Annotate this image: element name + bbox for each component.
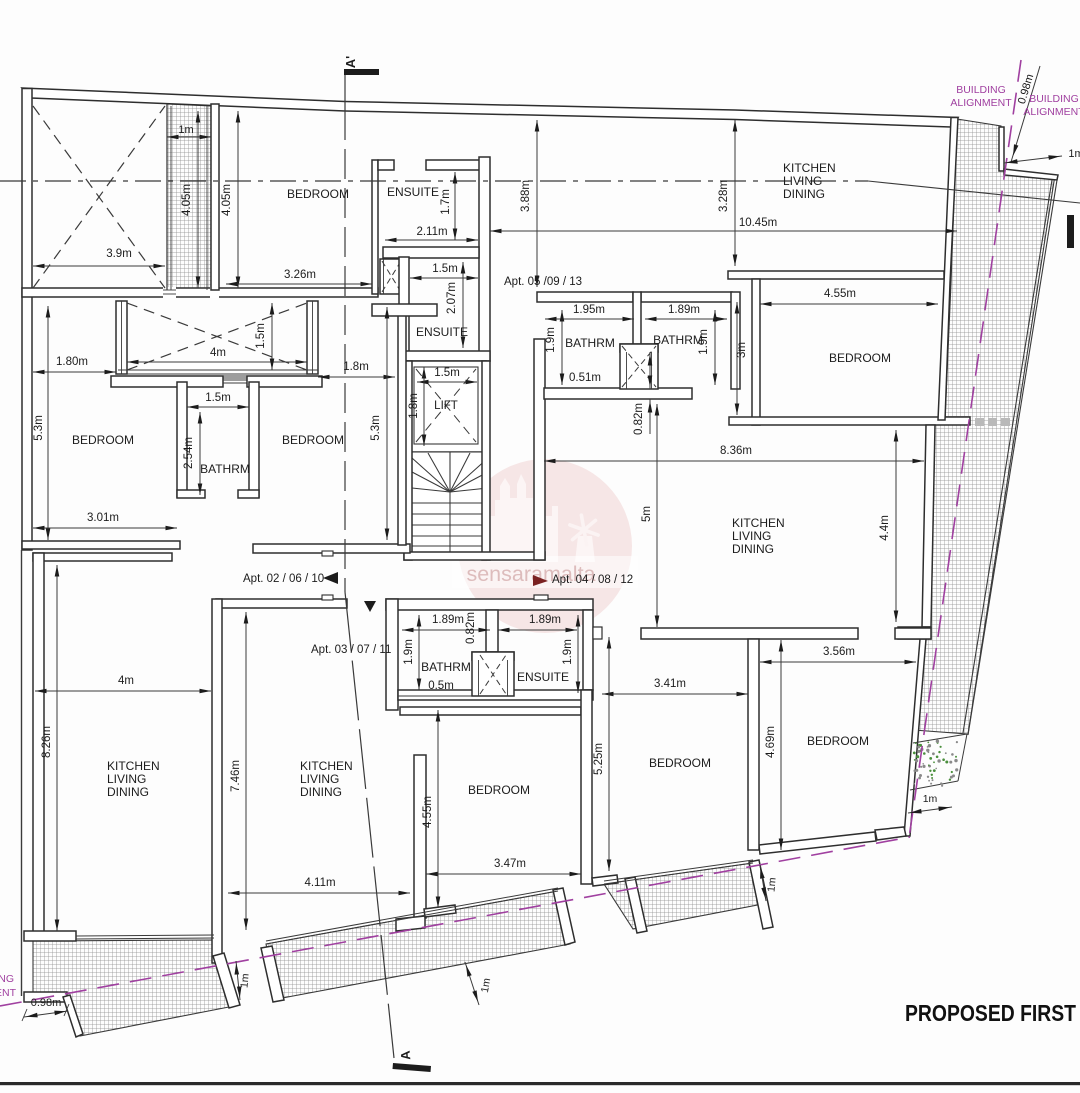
- svg-text:1m: 1m: [238, 973, 251, 989]
- svg-text:KITCHEN: KITCHEN: [107, 759, 160, 773]
- svg-text:KITCHEN: KITCHEN: [300, 759, 353, 773]
- svg-text:5.3m: 5.3m: [33, 415, 45, 441]
- svg-text:3.47m: 3.47m: [494, 858, 526, 870]
- svg-text:4m: 4m: [210, 347, 226, 359]
- svg-text:3.56m: 3.56m: [823, 646, 855, 658]
- svg-text:DINING: DINING: [732, 542, 774, 556]
- svg-text:0.51m: 0.51m: [569, 372, 601, 384]
- svg-text:1.89m: 1.89m: [432, 614, 464, 626]
- svg-text:4.05m: 4.05m: [181, 184, 193, 216]
- svg-text:DINING: DINING: [783, 187, 825, 201]
- svg-text:Apt. 05 /09 / 13: Apt. 05 /09 / 13: [504, 276, 582, 288]
- svg-text:10.45m: 10.45m: [739, 217, 777, 229]
- svg-text:BEDROOM: BEDROOM: [72, 433, 134, 447]
- svg-text:8.36m: 8.36m: [720, 445, 752, 457]
- svg-text:3.01m: 3.01m: [87, 512, 119, 524]
- svg-text:3.41m: 3.41m: [654, 678, 686, 690]
- svg-text:3.88m: 3.88m: [520, 180, 532, 212]
- svg-text:1m: 1m: [178, 124, 193, 136]
- svg-text:1.8m: 1.8m: [343, 361, 369, 373]
- svg-text:KITCHEN: KITCHEN: [783, 161, 836, 175]
- svg-text:BEDROOM: BEDROOM: [287, 187, 349, 201]
- svg-text:BEDROOM: BEDROOM: [649, 756, 711, 770]
- svg-text:BATHRM: BATHRM: [565, 336, 615, 350]
- svg-text:0.82m: 0.82m: [633, 403, 645, 435]
- svg-text:LIVING: LIVING: [783, 174, 822, 188]
- svg-text:1.9m: 1.9m: [545, 327, 557, 353]
- svg-text:BUILDING: BUILDING: [956, 84, 1006, 96]
- svg-text:1.80m: 1.80m: [56, 356, 88, 368]
- svg-text:7.46m: 7.46m: [230, 760, 242, 792]
- svg-text:KITCHEN: KITCHEN: [732, 516, 785, 530]
- svg-text:DINING: DINING: [107, 785, 149, 799]
- svg-text:1.5m: 1.5m: [432, 263, 458, 275]
- svg-text:4.4m: 4.4m: [879, 515, 891, 541]
- svg-text:1.89m: 1.89m: [529, 614, 561, 626]
- svg-text:A': A': [343, 56, 358, 68]
- svg-text:Apt. 02 / 06 / 10: Apt. 02 / 06 / 10: [243, 573, 324, 585]
- svg-text:3.26m: 3.26m: [284, 269, 316, 281]
- svg-text:2.11m: 2.11m: [416, 226, 447, 238]
- svg-text:BATHRM: BATHRM: [421, 660, 471, 674]
- svg-text:BEDROOM: BEDROOM: [829, 351, 891, 365]
- svg-text:BEDROOM: BEDROOM: [468, 783, 530, 797]
- svg-text:1.89m: 1.89m: [668, 304, 700, 316]
- svg-text:1m: 1m: [765, 877, 778, 893]
- svg-text:8.26m: 8.26m: [41, 726, 53, 758]
- svg-text:3m: 3m: [736, 342, 748, 358]
- svg-text:4.69m: 4.69m: [765, 726, 777, 758]
- svg-text:ENSUITE: ENSUITE: [416, 325, 468, 339]
- svg-text:ALIGNMENT: ALIGNMENT: [1023, 106, 1080, 118]
- svg-text:ENSUITE: ENSUITE: [387, 185, 439, 199]
- svg-text:DINING: DINING: [300, 785, 342, 799]
- svg-text:5.25m: 5.25m: [593, 743, 605, 775]
- svg-text:1.5m: 1.5m: [205, 392, 231, 404]
- svg-text:BUILDING: BUILDING: [1029, 93, 1079, 105]
- svg-text:1.95m: 1.95m: [573, 304, 605, 316]
- svg-text:4.55m: 4.55m: [422, 796, 434, 828]
- svg-text:1m: 1m: [923, 793, 938, 805]
- svg-text:3.9m: 3.9m: [106, 248, 132, 260]
- svg-text:ALIGNMENT: ALIGNMENT: [950, 97, 1012, 109]
- svg-text:0.82m: 0.82m: [465, 612, 477, 644]
- svg-text:BATHRM: BATHRM: [653, 333, 703, 347]
- svg-text:4m: 4m: [118, 675, 134, 687]
- svg-text:LIFT: LIFT: [434, 400, 458, 412]
- svg-text:1.5m: 1.5m: [434, 367, 460, 379]
- svg-text:2.54m: 2.54m: [183, 437, 195, 469]
- svg-text:NG: NG: [0, 973, 14, 985]
- svg-text:1.8m: 1.8m: [408, 393, 420, 419]
- svg-text:ENT: ENT: [0, 987, 17, 999]
- svg-text:1.9m: 1.9m: [403, 639, 415, 665]
- svg-text:1.7m: 1.7m: [440, 189, 452, 215]
- svg-text:Apt. 04 / 08 / 12: Apt. 04 / 08 / 12: [552, 574, 633, 586]
- svg-text:0.5m: 0.5m: [428, 680, 454, 692]
- svg-text:PROPOSED FIRST: PROPOSED FIRST: [905, 1000, 1077, 1026]
- svg-text:BEDROOM: BEDROOM: [807, 734, 869, 748]
- svg-text:1.5m: 1.5m: [255, 323, 267, 349]
- svg-text:3.28m: 3.28m: [718, 180, 730, 212]
- svg-text:BATHRM: BATHRM: [200, 462, 250, 476]
- svg-text:5.3m: 5.3m: [370, 415, 382, 441]
- svg-text:4.55m: 4.55m: [824, 288, 856, 300]
- svg-text:BEDROOM: BEDROOM: [282, 433, 344, 447]
- svg-text:LIVING: LIVING: [732, 529, 771, 543]
- svg-text:4.05m: 4.05m: [221, 184, 233, 216]
- svg-text:2.07m: 2.07m: [446, 282, 458, 314]
- svg-text:ENSUITE: ENSUITE: [517, 670, 569, 684]
- svg-text:1m: 1m: [1068, 148, 1080, 160]
- svg-text:5m: 5m: [641, 506, 653, 522]
- svg-text:LIVING: LIVING: [107, 772, 146, 786]
- svg-text:0.98m: 0.98m: [31, 997, 62, 1009]
- svg-text:4.11m: 4.11m: [304, 877, 335, 889]
- svg-text:1.9m: 1.9m: [562, 639, 574, 665]
- svg-text:LIVING: LIVING: [300, 772, 339, 786]
- svg-text:1m: 1m: [479, 977, 493, 994]
- svg-text:Apt. 03 / 07 / 11: Apt. 03 / 07 / 11: [311, 644, 391, 656]
